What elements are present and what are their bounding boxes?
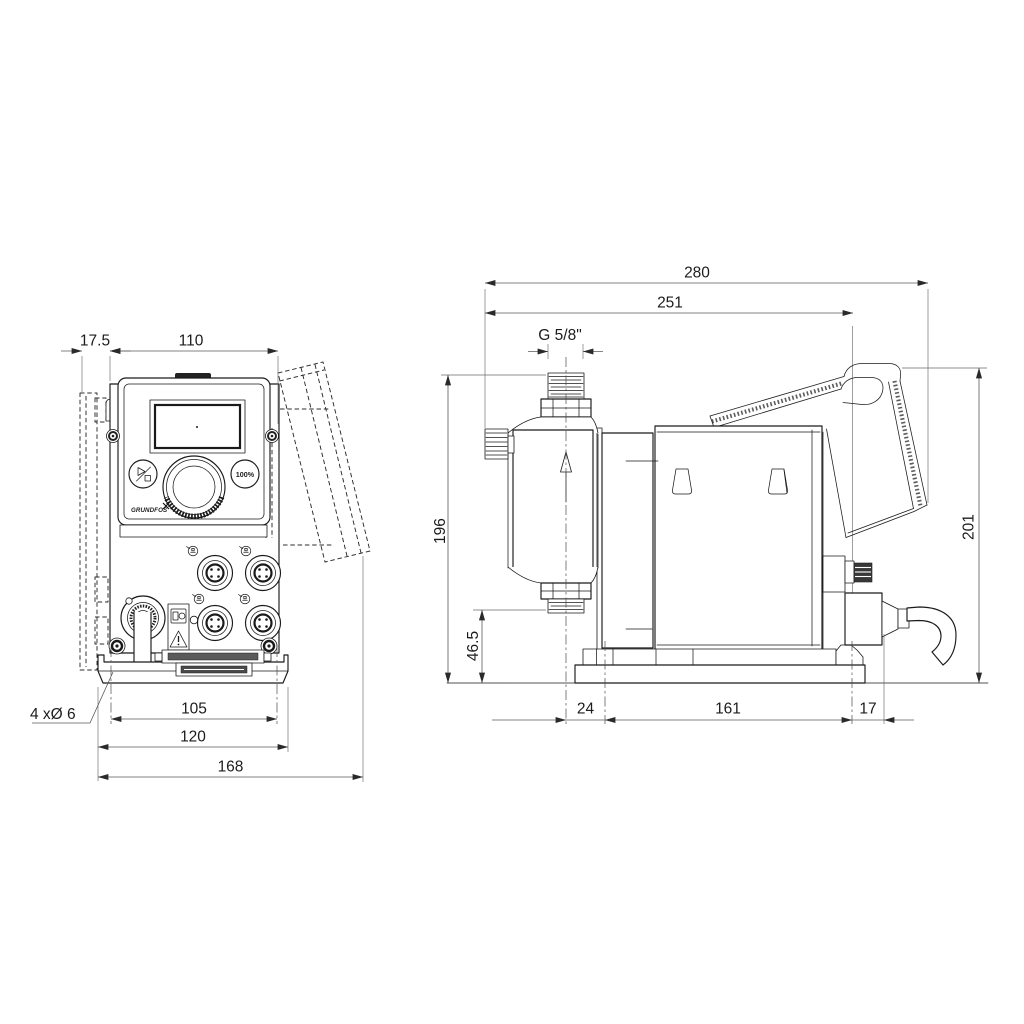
dim-body-width: 110: [179, 333, 204, 350]
panel-screw-left: [107, 430, 120, 443]
dim-depth-to-mount: 251: [657, 295, 683, 312]
brand-wordmark: GRUNDFOS: [131, 507, 168, 514]
m12-connector-bottom-right: [246, 606, 281, 641]
dim-front-hole-offset: 24: [577, 701, 595, 718]
cable-gland: [845, 593, 882, 645]
head-body: [513, 430, 593, 570]
m12-connector-top-left: [198, 556, 233, 591]
dim-hole-spacing-side: 161: [715, 701, 741, 718]
dim-overall-depth: 280: [684, 265, 710, 282]
control-panel: 100% GRUNDFOS: [107, 373, 279, 537]
dim-foot-width: 120: [180, 729, 206, 746]
start-stop-button: [129, 460, 157, 488]
rear-thread-collar: [845, 561, 854, 583]
m12-connector-bottom-left: [198, 606, 233, 641]
m12-connector-top-right: [246, 556, 281, 591]
dim-connection-thread: G 5/8": [538, 327, 581, 344]
warning-label: [168, 604, 189, 650]
coupling-section: [597, 428, 658, 650]
housing-screw-left: [109, 638, 125, 654]
boost-button-label: 100%: [236, 470, 255, 479]
dim-rear-hole-offset: 17: [859, 701, 876, 718]
dim-overall-width: 168: [218, 759, 244, 776]
dimensional-drawing: 100% GRUNDFOS: [0, 0, 1024, 1024]
base-plate-side: [575, 645, 865, 683]
dim-hole-spacing-front: 105: [181, 701, 207, 718]
dim-inlet-height: 196: [432, 518, 449, 544]
dim-outlet-height: 46.5: [465, 631, 482, 661]
boost-100-button: 100%: [231, 460, 259, 488]
panel-screw-right: [266, 430, 279, 443]
lcd-display: [150, 400, 245, 453]
dim-overall-height: 201: [961, 514, 978, 540]
dim-wall-offset: 17.5: [80, 333, 110, 350]
click-wheel: [163, 456, 225, 518]
motor-housing-side: [655, 426, 823, 650]
panel-bottom-strip: [120, 525, 267, 537]
hole-note: 4 xØ 6: [30, 706, 76, 723]
